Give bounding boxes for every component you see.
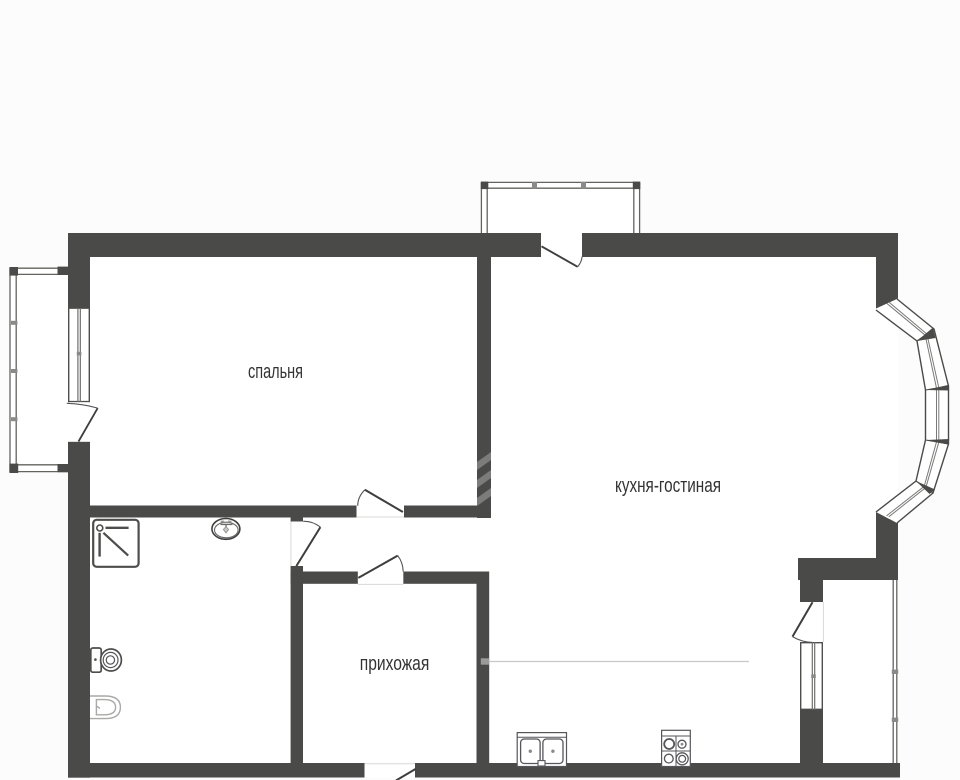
svg-text:спальня: спальня: [248, 361, 303, 383]
svg-text:прихожая: прихожая: [360, 653, 430, 675]
svg-text:кухня-гостиная: кухня-гостиная: [615, 475, 721, 497]
